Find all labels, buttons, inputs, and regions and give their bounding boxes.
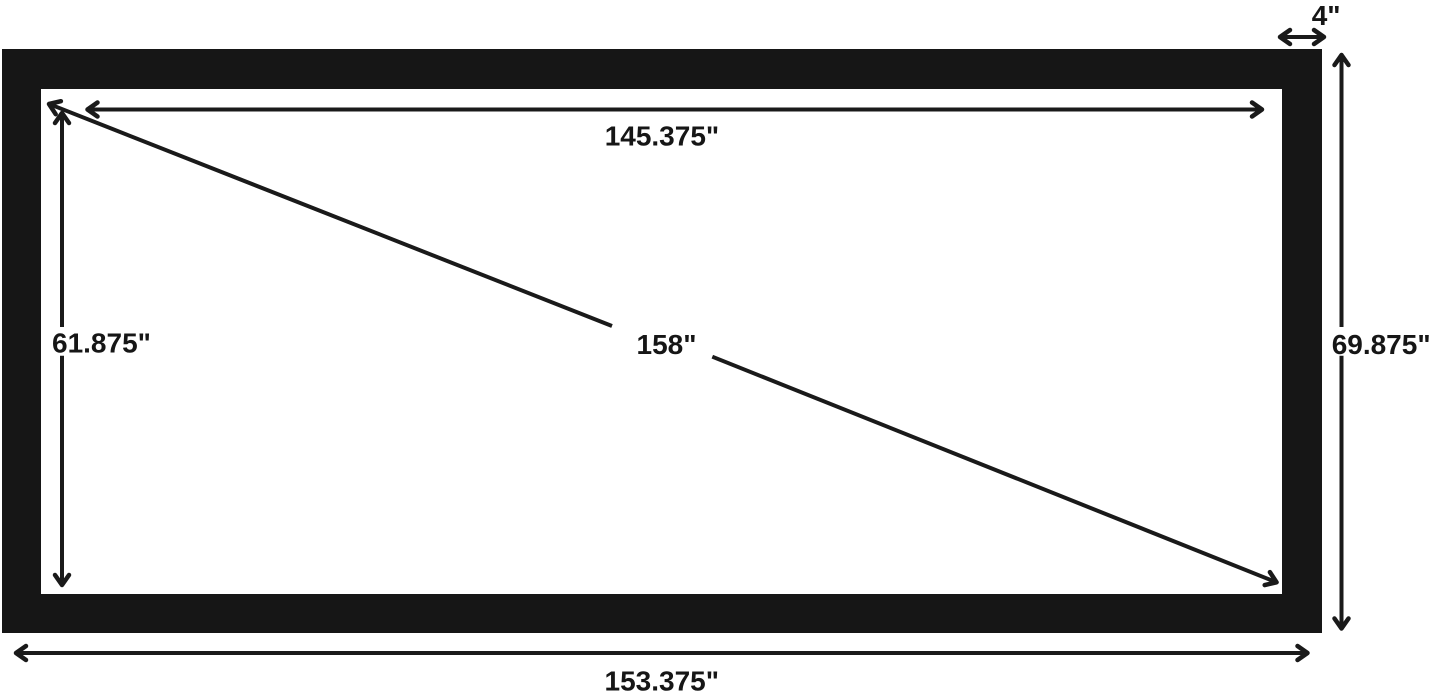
svg-text:145.375": 145.375" <box>605 120 720 151</box>
svg-text:61.875": 61.875" <box>52 327 151 358</box>
svg-text:158": 158" <box>637 329 697 360</box>
svg-text:69.875": 69.875" <box>1332 329 1431 360</box>
svg-text:4": 4" <box>1312 0 1341 31</box>
svg-text:153.375": 153.375" <box>605 666 720 695</box>
